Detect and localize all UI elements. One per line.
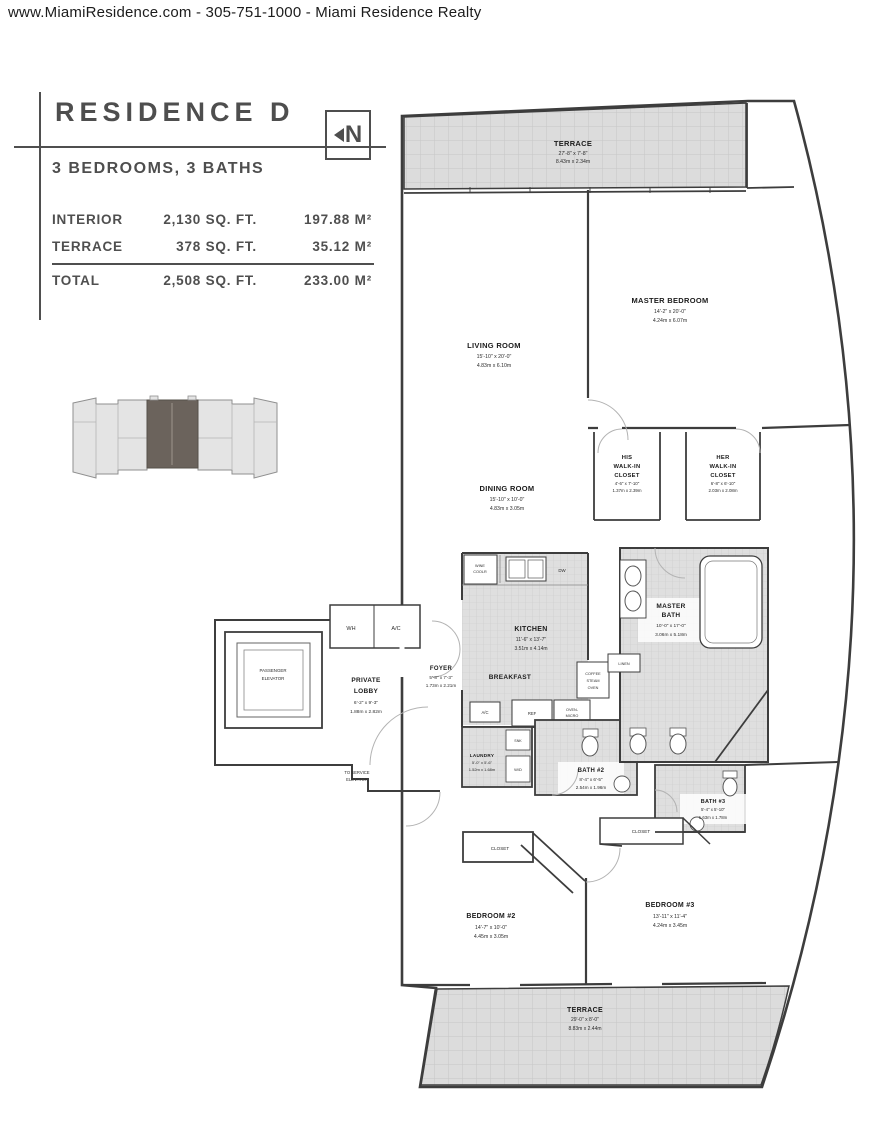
room-dims: 13'-11" x 11'-4" (653, 914, 687, 920)
bath3-toilet (723, 778, 737, 796)
room-label: CLOSET (614, 473, 639, 479)
refrigerator-label: REF (528, 711, 537, 716)
room-dims: 2.54m x 1.96m (576, 785, 607, 790)
room-dims: 5'-4" x 5'-10" (701, 807, 726, 812)
room-dims: 3.51m x 4.14m (514, 646, 547, 652)
room-label: TERRACE (554, 139, 592, 148)
room-dims: 4.83m x 6.10m (477, 363, 511, 369)
room-dims: 2.03m x 2.08m (708, 488, 737, 493)
bath2-toilet (582, 736, 598, 756)
master-bath-bidet (670, 734, 686, 754)
room-dims: 6'-8" x 6'-10" (711, 481, 736, 486)
room-label: WALK-IN (614, 464, 641, 470)
room-label: LIVING ROOM (467, 341, 521, 350)
room-label: PRIVATE (351, 677, 381, 684)
coffee-steam-oven-label: COFFEE (585, 672, 601, 676)
room-label: MASTER (656, 603, 685, 610)
room-dims: 4.45m x 3.05m (474, 934, 508, 940)
room-label: MASTER BEDROOM (631, 296, 708, 305)
room-dims: 8.83m x 2.44m (568, 1026, 601, 1032)
wine-cooler-label: COOLR (473, 570, 487, 574)
room-dims: 14'-7" x 10'-0" (475, 925, 507, 931)
room-dims: 4'-6" x 7'-10" (615, 481, 640, 486)
room-dims: 8'-4" x 6'-5" (579, 777, 603, 782)
room-label: BEDROOM #3 (645, 902, 694, 909)
room-dims: 6'-2" x 9'-3" (354, 700, 378, 706)
service-elevator-label: ELEVATOR (346, 777, 368, 782)
kitchen-sink (506, 557, 546, 581)
ac-small-label: A/C (482, 710, 489, 715)
room-dims: 15'-10" x 20'-0" (477, 354, 512, 360)
master-bath-sink (625, 591, 641, 611)
room-dims: 1.37m x 2.39m (612, 488, 641, 493)
key-plan-notch (150, 396, 158, 400)
room-dims: 1.63m x 1.78m (699, 815, 728, 820)
room-label: HIS (622, 455, 633, 461)
closet-label: CLOSET (632, 829, 651, 834)
passenger-elevator-label: ELEVATOR (262, 676, 285, 681)
coffee-steam-oven-label: OVEN (588, 686, 599, 690)
room-label: FOYER (430, 666, 453, 672)
oven-micro-label: MICRO (566, 714, 579, 718)
room-dims: 4.83m x 3.05m (490, 506, 524, 512)
room-label: HER (716, 455, 730, 461)
room-label: BEDROOM #2 (466, 913, 515, 920)
utility-closet (330, 605, 420, 648)
room-label: BATH (662, 612, 681, 619)
washer-dryer-label: W/D (514, 767, 522, 772)
floor-plan-page: www.MiamiResidence.com - 305-751-1000 - … (0, 0, 872, 1132)
key-plan (73, 396, 277, 478)
sink-label: SNK (514, 739, 522, 743)
ac-label: A/C (391, 626, 400, 632)
room-label: BATH #2 (578, 768, 605, 774)
coffee-steam-oven-label: STEAM (586, 679, 599, 683)
room-label: BREAKFAST (489, 674, 531, 681)
room-dims: 1.73m x 2.21m (426, 683, 457, 688)
linen-label: LINEN (618, 662, 629, 666)
key-plan-notch (188, 396, 196, 400)
master-bath-sink (625, 566, 641, 586)
service-elevator-label: TO SERVICE (344, 770, 369, 775)
room-label: BATH #3 (701, 799, 726, 805)
room-dims: 14'-2" x 20'-0" (654, 309, 686, 315)
room-dims: 4.24m x 6.07m (653, 318, 687, 324)
water-heater-label: WH (346, 626, 355, 632)
room-label: LOBBY (354, 688, 379, 695)
dishwasher-label: DW (558, 568, 566, 573)
oven-micro-label: OVEN- (566, 708, 579, 712)
room-label: CLOSET (710, 473, 735, 479)
wine-cooler-label: WINE (475, 564, 485, 568)
master-bath-toilet (630, 734, 646, 754)
room-dims: 3.06m x 5.18m (655, 632, 687, 638)
room-label: DINING ROOM (480, 484, 535, 493)
room-dims: 11'-6" x 13'-7" (516, 637, 547, 643)
room-dims: 27'-8" x 7'-8" (558, 151, 587, 157)
room-label: LAUNDRY (470, 753, 494, 758)
room-dims: 29'-0" x 8'-0" (571, 1017, 599, 1023)
room-dims: 1.88m x 2.82m (350, 709, 382, 715)
room-label: TERRACE (567, 1007, 603, 1014)
unit-walls (215, 101, 854, 1087)
room-dims: 4.24m x 3.45m (653, 923, 687, 929)
room-dims: 10'-0" x 17'-0" (656, 623, 686, 629)
master-bath-tub (700, 556, 762, 648)
bath3-toilet-tank (723, 771, 737, 778)
room-dims: 5'-8" x 7'-3" (429, 675, 453, 680)
room-dims: 5'-0" x 5'-6" (472, 760, 493, 765)
room-label: KITCHEN (514, 626, 547, 633)
room-dims: 8.43m x 2.34m (556, 159, 590, 165)
room-dims: 1.52m x 1.68m (469, 767, 496, 772)
terrace-bottom-area (421, 986, 789, 1085)
floor-plan-drawing: TERRACE 27'-8" x 7'-8" 8.43m x 2.34m LIV… (0, 0, 872, 1132)
passenger-elevator-label: PASSENGER (259, 668, 286, 673)
bath2-sink (614, 776, 630, 792)
room-label: WALK-IN (710, 464, 737, 470)
room-dims: 15'-10" x 10'-0" (490, 497, 525, 503)
closet-label: CLOSET (491, 846, 510, 851)
